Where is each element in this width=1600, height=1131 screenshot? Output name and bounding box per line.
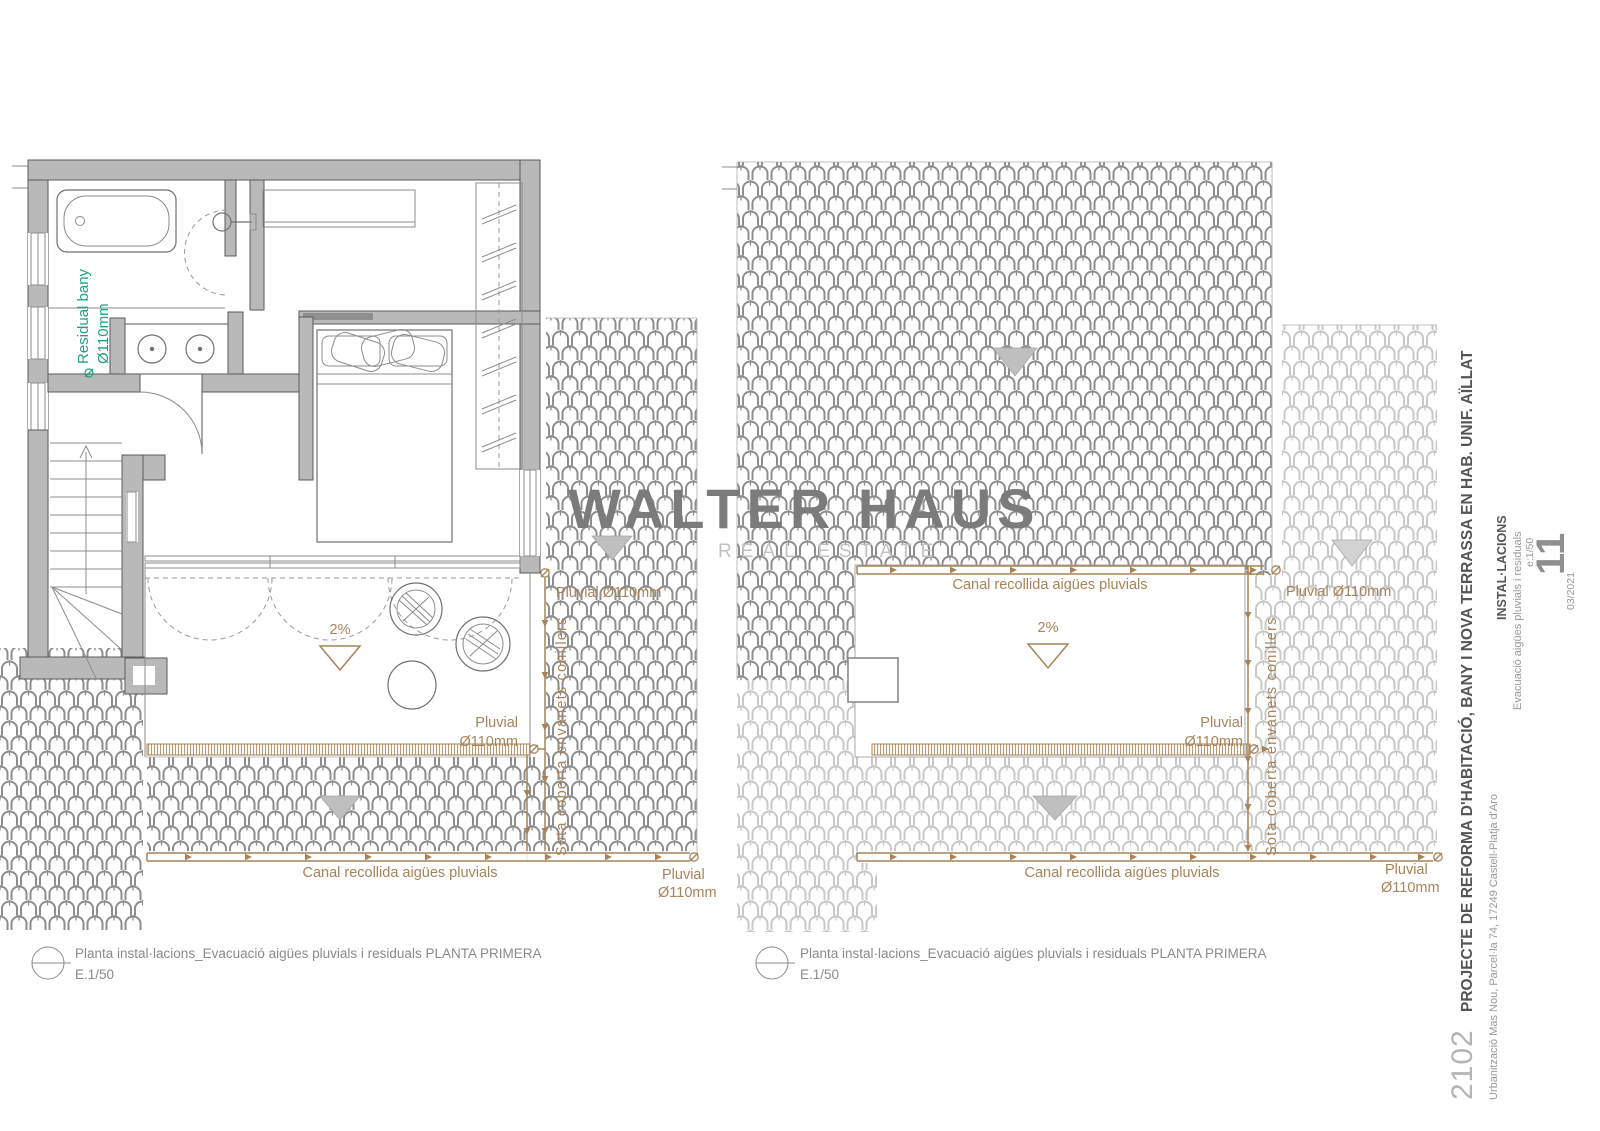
discipline: INSTAL·LACIONS [1495, 515, 1509, 620]
terrace [145, 556, 530, 757]
caption-title: Planta instal·lacions_Evacuació aigües p… [75, 946, 541, 961]
round-table [388, 661, 436, 709]
residual-annotation: Residual bany Ø110mm [75, 268, 112, 377]
canal-label: Canal recollida aigües pluvials [952, 577, 1147, 593]
pluvial-label: Pluvial Ø110mm [1286, 584, 1391, 600]
wicker-chair [456, 617, 510, 671]
plan-marker-icon [32, 947, 71, 979]
sheet-number: 11 [1529, 533, 1573, 575]
caption-scale: E.1/50 [75, 967, 114, 982]
caption-title: Planta instal·lacions_Evacuació aigües p… [800, 946, 1266, 961]
window [28, 233, 48, 433]
plan-canvas: Pluvial Ø110mm Pluvial Ø110mm Canal reco… [0, 0, 1600, 1131]
pluvial-diameter-label: Ø110mm [1184, 734, 1243, 750]
dressing-counter [263, 190, 415, 227]
slope-label: 2% [1038, 620, 1059, 636]
bed [317, 327, 452, 542]
wicker-chair [390, 583, 442, 635]
canal-label: Canal recollida aigües pluvials [1024, 865, 1219, 881]
project-number: 2102 [1446, 1029, 1479, 1100]
pluvial-label: Pluvial [475, 715, 518, 731]
pluvial-label: Pluvial [1385, 862, 1428, 878]
pluvial-label: Pluvial [1200, 715, 1243, 731]
project-title: PROJECTE DE REFORMA D'HABITACIÓ, BANY I … [1458, 350, 1476, 1012]
residual-diameter-label: Ø110mm [95, 303, 112, 364]
watermark-title: WALTER HAUS [568, 477, 1041, 540]
residual-label: Residual bany [75, 268, 92, 364]
left-plan-walls [12, 160, 540, 660]
caption-scale: E.1/50 [800, 967, 839, 982]
shower-door-swing [185, 210, 257, 295]
wardrobe [476, 183, 522, 469]
plan-marker-icon [756, 947, 795, 979]
under-roof-label: Sota coberta envanets conillers [1264, 616, 1280, 856]
title-block: 2102 PROJECTE DE REFORMA D'HABITACIÓ, BA… [1446, 350, 1577, 1100]
slope-label: 2% [330, 622, 351, 638]
canal-label: Canal recollida aigües pluvials [302, 865, 497, 881]
watermark-subtitle: REAL ESTATE [718, 541, 942, 562]
caption-left: Planta instal·lacions_Evacuació aigües p… [32, 946, 541, 982]
pluvial-diameter-label: Ø110mm [1381, 880, 1440, 896]
vanity-double-sink [125, 324, 228, 374]
left-plan: Pluvial Ø110mm Pluvial Ø110mm Canal reco… [0, 160, 717, 930]
drawing-date: 03/2021 [1565, 572, 1577, 610]
pluvial-label: Pluvial Ø110mm [556, 585, 661, 601]
drawing-sheet: Pluvial Ø110mm Pluvial Ø110mm Canal reco… [0, 0, 1600, 1131]
pluvial-diameter-label: Ø110mm [658, 885, 717, 901]
under-roof-label: Sota coberta envanets conillers [554, 616, 570, 856]
drawing-title: Evacuació aigües pluvials i residuals [1512, 531, 1524, 710]
new-terrace-area [855, 565, 1245, 757]
door-swing [140, 392, 202, 454]
chimney [848, 658, 898, 702]
project-address: Urbanització Mas Nou, Parcel·la 74, 1724… [1488, 794, 1500, 1100]
pluvial-diameter-label: Ø110mm [459, 734, 518, 750]
pluvial-label: Pluvial [662, 867, 705, 883]
caption-right: Planta instal·lacions_Evacuació aigües p… [756, 946, 1266, 982]
bathtub [57, 190, 176, 252]
window [520, 470, 540, 556]
